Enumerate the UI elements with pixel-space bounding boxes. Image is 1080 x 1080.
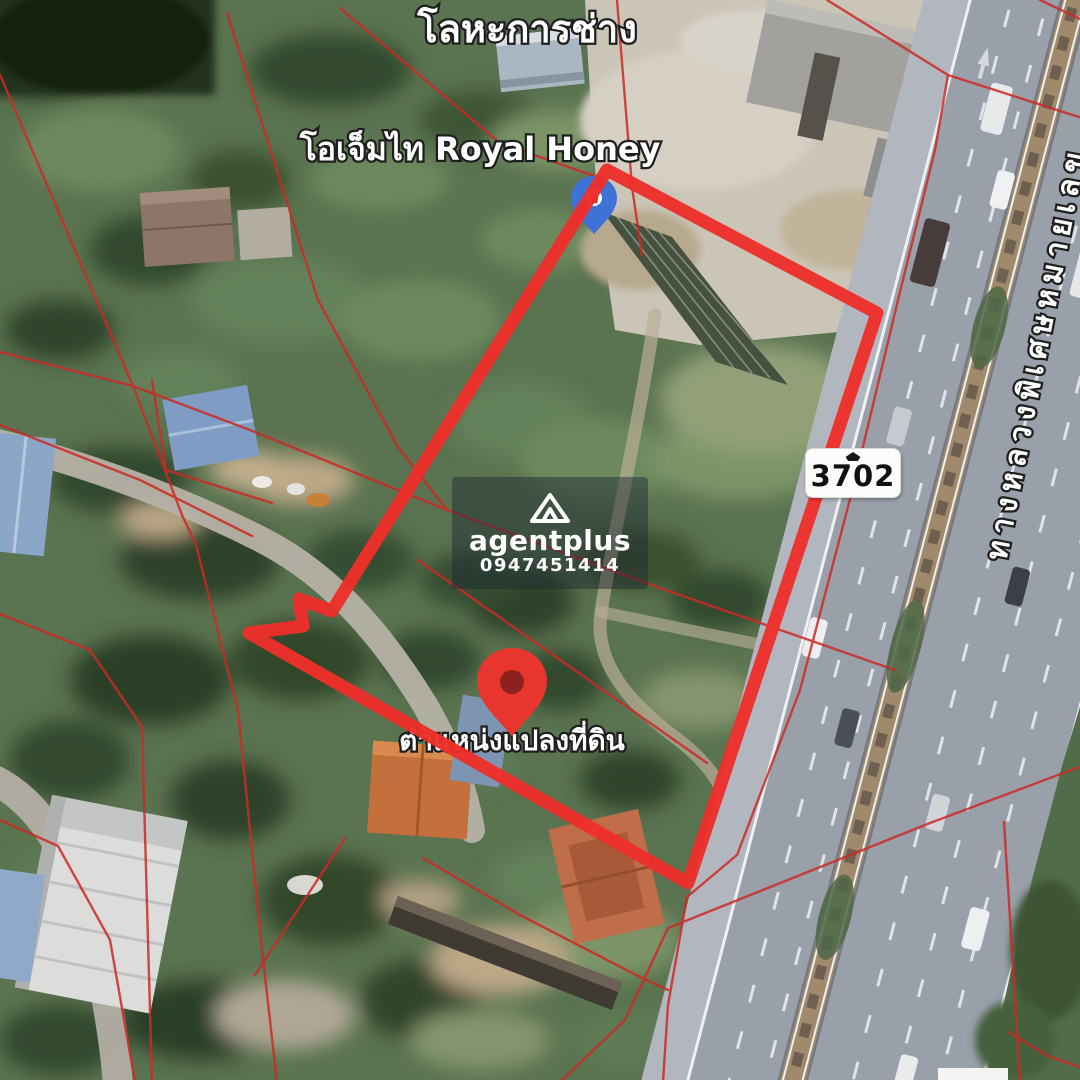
route-number: 3702 [811, 461, 896, 493]
highway-crest-icon [846, 452, 861, 461]
watermark-brand: agentplus [469, 526, 631, 555]
pond [0, 0, 215, 95]
watermark-phone: 0947451414 [480, 556, 620, 576]
agent-watermark: agentplus 0947451414 [452, 477, 648, 589]
agentplus-logo-icon [527, 490, 573, 526]
place-label-metal-workshop[interactable]: โลหะการช่าง [416, 6, 637, 51]
place-label-royal-honey[interactable]: โอเจ็มไท Royal Honey [299, 129, 661, 168]
route-shield[interactable]: 3702 [806, 449, 900, 497]
satellite-map-view[interactable]: โลหะการช่าง โอเจ็มไท Royal Honey ทางหลวง… [0, 0, 1080, 1080]
bottom-white-box [938, 1068, 1008, 1080]
